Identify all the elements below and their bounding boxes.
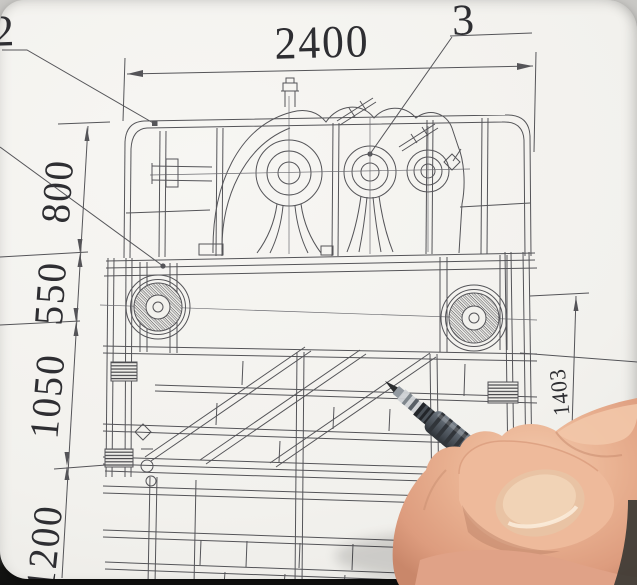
callout-label-3: 3: [451, 0, 477, 46]
dimension-label-1200: 1200: [16, 502, 73, 579]
photo-scene: 2400 2 3 800 550 1050 1200 1403: [0, 0, 637, 585]
dimension-label-550: 550: [24, 259, 76, 326]
dimension-label-1050: 1050: [19, 351, 74, 440]
dimension-label-2400: 2400: [274, 14, 370, 69]
paper-sheet: 2400 2 3 800 550 1050 1200 1403: [0, 0, 637, 579]
dimension-label-800: 800: [31, 157, 83, 224]
callout-label-2: 2: [0, 5, 17, 57]
dimension-label-1403: 1403: [545, 367, 576, 417]
